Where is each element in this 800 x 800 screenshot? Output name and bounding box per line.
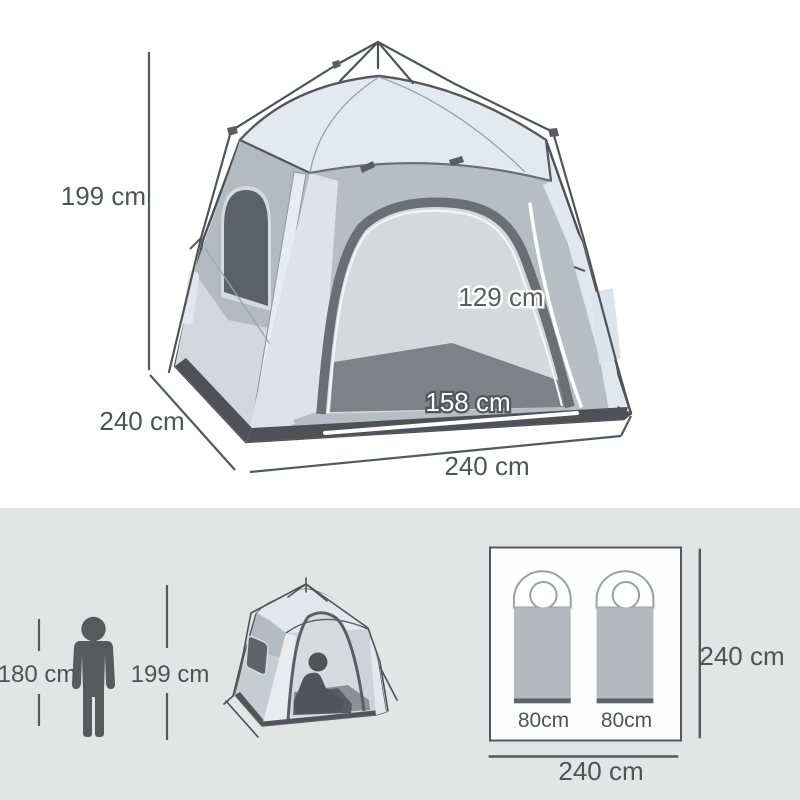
- svg-text:240 cm: 240 cm: [558, 756, 643, 786]
- svg-text:240 cm: 240 cm: [444, 451, 529, 481]
- svg-text:129 cm: 129 cm: [458, 282, 543, 312]
- svg-text:199 cm: 199 cm: [131, 661, 210, 688]
- svg-text:199 cm: 199 cm: [61, 181, 146, 211]
- svg-text:240 cm: 240 cm: [699, 641, 784, 671]
- svg-text:180 cm: 180 cm: [0, 661, 76, 688]
- svg-text:80cm: 80cm: [601, 709, 652, 732]
- svg-text:240 cm: 240 cm: [99, 406, 184, 436]
- svg-text:158 cm: 158 cm: [425, 387, 510, 417]
- svg-text:80cm: 80cm: [518, 709, 569, 732]
